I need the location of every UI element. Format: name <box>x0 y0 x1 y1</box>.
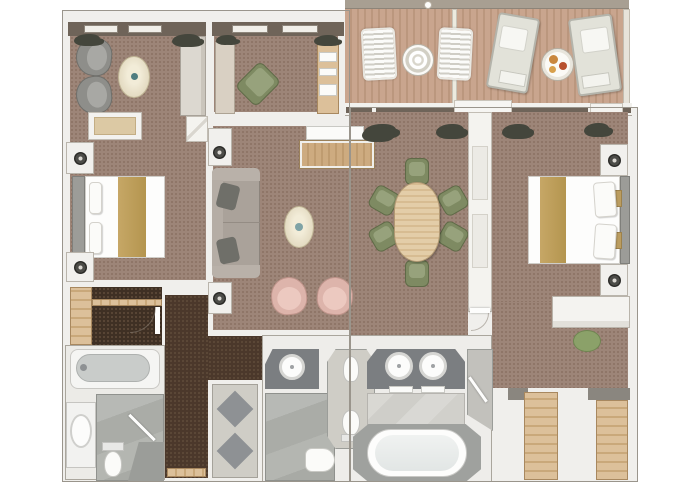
vanity-desk <box>552 296 630 328</box>
window-pane-2 <box>128 25 162 33</box>
closet-door-leaf <box>155 307 160 334</box>
breakfast-plate-1 <box>549 55 558 64</box>
bed-left-pillow-1 <box>89 182 102 214</box>
veranda-end-wall <box>623 9 630 106</box>
floor-corridor-arm <box>208 336 262 380</box>
window-pane-1 <box>84 25 118 33</box>
lamp-left-1 <box>74 152 87 165</box>
vanity-double-sink-2 <box>419 352 447 380</box>
window-pane-4 <box>282 25 318 33</box>
guest-washbasin <box>70 414 92 448</box>
closet-right-2-wall <box>588 388 630 400</box>
master-bath-floor <box>367 393 465 427</box>
window-pane-3 <box>232 25 268 33</box>
partition-panel-1 <box>472 146 488 200</box>
towel-2 <box>421 386 445 393</box>
powder-room-toilet <box>305 448 335 472</box>
dining-chair-bottom <box>405 260 429 287</box>
sofa-seam <box>223 222 260 223</box>
closet-right-1-floor <box>524 392 558 480</box>
guest-bathroom <box>65 345 165 480</box>
media-sideboard <box>300 141 374 168</box>
breakfast-plate-3 <box>549 66 556 73</box>
soaking-tub-basin <box>375 435 459 471</box>
bed-left-runner <box>118 177 146 257</box>
sofa-armrest-bottom <box>212 265 260 278</box>
bidet <box>343 356 359 382</box>
console-backpanel <box>306 126 364 140</box>
vanity-double-sink-1 <box>385 352 413 380</box>
ornate-deck-table <box>402 44 434 76</box>
guest-toilet-bowl <box>104 451 122 477</box>
wardrobe-cabinet <box>180 36 206 116</box>
coffee-table-ornament <box>295 223 303 231</box>
bed-right-runner <box>540 177 566 263</box>
railing-light <box>424 1 432 9</box>
lounger-towel-1 <box>498 25 529 52</box>
side-table-ornament <box>131 73 138 80</box>
wc-toilet-bowl <box>342 410 360 436</box>
desk-shelf-3 <box>319 84 337 96</box>
lamp-right-2 <box>608 274 621 287</box>
lounger-towel-2 <box>579 26 610 54</box>
luggage-rack <box>186 116 208 142</box>
breakfast-plate-2 <box>559 62 567 70</box>
vanity-double-counter <box>367 349 465 389</box>
guest-toilet-tank <box>102 442 124 451</box>
closet-shelf-left <box>70 287 92 345</box>
guest-tub-basin <box>76 354 150 382</box>
closet-shelf-top <box>92 299 162 306</box>
sitting-bench-cushion <box>94 117 136 135</box>
bed-right-pillow-1 <box>593 181 617 217</box>
floor-corridor-vertical <box>165 295 208 478</box>
entry-door <box>167 468 206 477</box>
towel-1 <box>389 386 413 393</box>
partition-panel-2 <box>472 214 488 268</box>
partition-wall <box>468 112 492 312</box>
floor-plan <box>0 0 680 486</box>
vanity-left-sink <box>279 354 305 380</box>
closet-right-2-floor <box>596 400 628 480</box>
lamp-right-1 <box>608 154 621 167</box>
bed-right-pillow-2 <box>593 223 617 259</box>
veranda-railing <box>345 0 629 9</box>
lamp-left-2 <box>74 261 87 274</box>
vanity-stool <box>573 330 601 352</box>
study-cabinet <box>215 42 235 114</box>
dining-chair-top <box>405 158 429 185</box>
deck-chair-2 <box>437 27 474 81</box>
pedestal-lamp-2 <box>213 292 226 305</box>
master-bathroom <box>262 335 492 482</box>
desk-shelf-1 <box>319 52 337 62</box>
deck-chair-1 <box>361 27 398 81</box>
bed-left-headboard <box>72 176 85 258</box>
deck-service-table <box>541 48 574 81</box>
bed-left-pillow-2 <box>89 222 102 254</box>
dining-table <box>394 182 440 262</box>
pedestal-lamp-1 <box>213 146 226 159</box>
desk-shelf-2 <box>319 68 337 76</box>
guest-tub-faucet <box>80 364 87 371</box>
